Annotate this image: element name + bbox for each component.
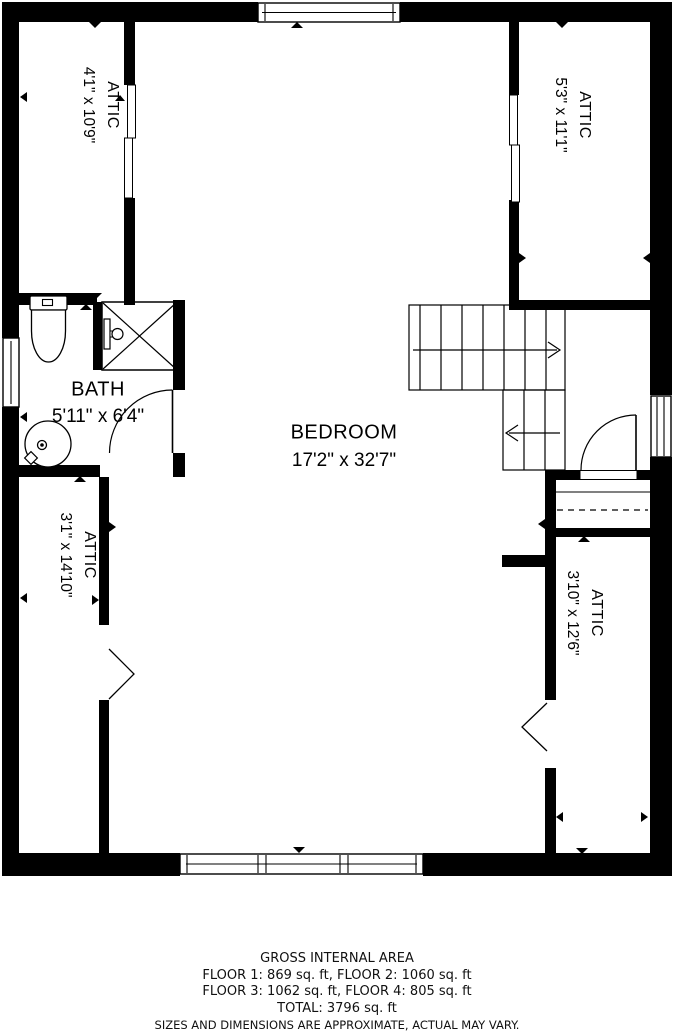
total-area: TOTAL: 3796 sq. ft [0, 1001, 674, 1018]
wall-segment [650, 457, 672, 876]
floor-plan-page: BEDROOM 17'2" x 32'7" BATH 5'11" x 6'4" … [0, 0, 674, 1031]
shower-symbol [102, 302, 177, 370]
attic-bottom-left-dims: 3'1" x 14'10" [57, 512, 74, 597]
sink-symbol [25, 421, 71, 467]
marker-triangle [556, 22, 568, 28]
bath-dims: 5'11" x 6'4" [52, 406, 144, 427]
wall-segment [93, 302, 102, 370]
marker-triangle [291, 22, 303, 28]
marker-triangle [20, 412, 27, 422]
attic-access-chevron-left [109, 649, 134, 699]
marker-triangle [643, 253, 650, 263]
marker-triangle [556, 812, 563, 822]
attic-top-right-dims: 5'3" x 11'1" [552, 77, 569, 152]
attic-bottom-right-dims: 3'10" x 12'6" [564, 570, 581, 655]
wall-segment [545, 528, 650, 537]
window-left [3, 338, 19, 407]
bath-label: BATH [71, 378, 125, 400]
interior-glazing-right [510, 95, 520, 202]
attic-bottom-left-label: ATTIC [81, 531, 98, 579]
bedroom-label: BEDROOM [291, 421, 398, 443]
wall-segment [423, 853, 672, 876]
staircase [409, 305, 565, 470]
wall-segment [19, 465, 100, 477]
marker-triangle [20, 593, 27, 603]
wall-segment [99, 477, 109, 625]
wall-segment [124, 198, 135, 305]
stair-direction-arrow-left [506, 425, 560, 441]
wall-segment [545, 768, 556, 853]
wall-segment [509, 22, 519, 95]
footer: GROSS INTERNAL AREA FLOOR 1: 869 sq. ft,… [0, 951, 674, 1031]
stair-lower-flight [503, 390, 565, 470]
wall-segment [400, 2, 672, 22]
stair-upper-flight [409, 305, 565, 390]
marker-triangle [293, 847, 305, 853]
wall-segment [99, 700, 109, 853]
wall-segment [2, 2, 258, 22]
gross-internal-area-title: GROSS INTERNAL AREA [0, 951, 674, 968]
marker-triangle [538, 519, 545, 529]
marker-triangle [109, 522, 116, 532]
wall-segment [2, 853, 180, 876]
attic-access-chevron-right [522, 703, 547, 751]
toilet-symbol [30, 296, 67, 362]
wall-segment [650, 2, 672, 395]
attic-bottom-right-label: ATTIC [588, 589, 605, 637]
wall-segment [2, 2, 19, 338]
window-right [651, 396, 671, 457]
interior-glazing-left [125, 85, 136, 198]
wall-segment [545, 473, 556, 700]
marker-triangle [20, 92, 27, 102]
floor-plan: BEDROOM 17'2" x 32'7" BATH 5'11" x 6'4" … [0, 0, 674, 1031]
wall-segment [637, 470, 650, 480]
wall-segment [502, 555, 545, 567]
wall-segment [509, 200, 519, 300]
door-threshold [580, 471, 637, 480]
wall-segment [124, 22, 135, 85]
window-top [258, 3, 400, 22]
marker-triangle [519, 253, 526, 263]
marker-triangle [92, 595, 99, 605]
floor-areas-line-2: FLOOR 3: 1062 sq. ft, FLOOR 4: 805 sq. f… [0, 984, 674, 1001]
attic-top-left-label: ATTIC [104, 81, 121, 129]
window-bottom-triple [180, 854, 423, 874]
marker-triangle [641, 812, 648, 822]
bedroom-dims: 17'2" x 32'7" [292, 450, 396, 471]
wall-segment [173, 453, 185, 477]
attic-top-left-dims: 4'1" x 10'9" [80, 67, 97, 143]
closet [556, 492, 650, 510]
wall-segment [2, 407, 19, 876]
stair-direction-arrow-right [413, 342, 560, 358]
attic-top-right-label: ATTIC [576, 91, 593, 139]
wall-segment [173, 300, 185, 390]
floor-areas-line-1: FLOOR 1: 869 sq. ft, FLOOR 2: 1060 sq. f… [0, 968, 674, 985]
marker-triangle [89, 22, 101, 28]
landing-door [581, 415, 636, 470]
room-labels: BEDROOM 17'2" x 32'7" BATH 5'11" x 6'4" … [52, 67, 605, 656]
disclaimer: SIZES AND DIMENSIONS ARE APPROXIMATE, AC… [0, 1018, 674, 1031]
